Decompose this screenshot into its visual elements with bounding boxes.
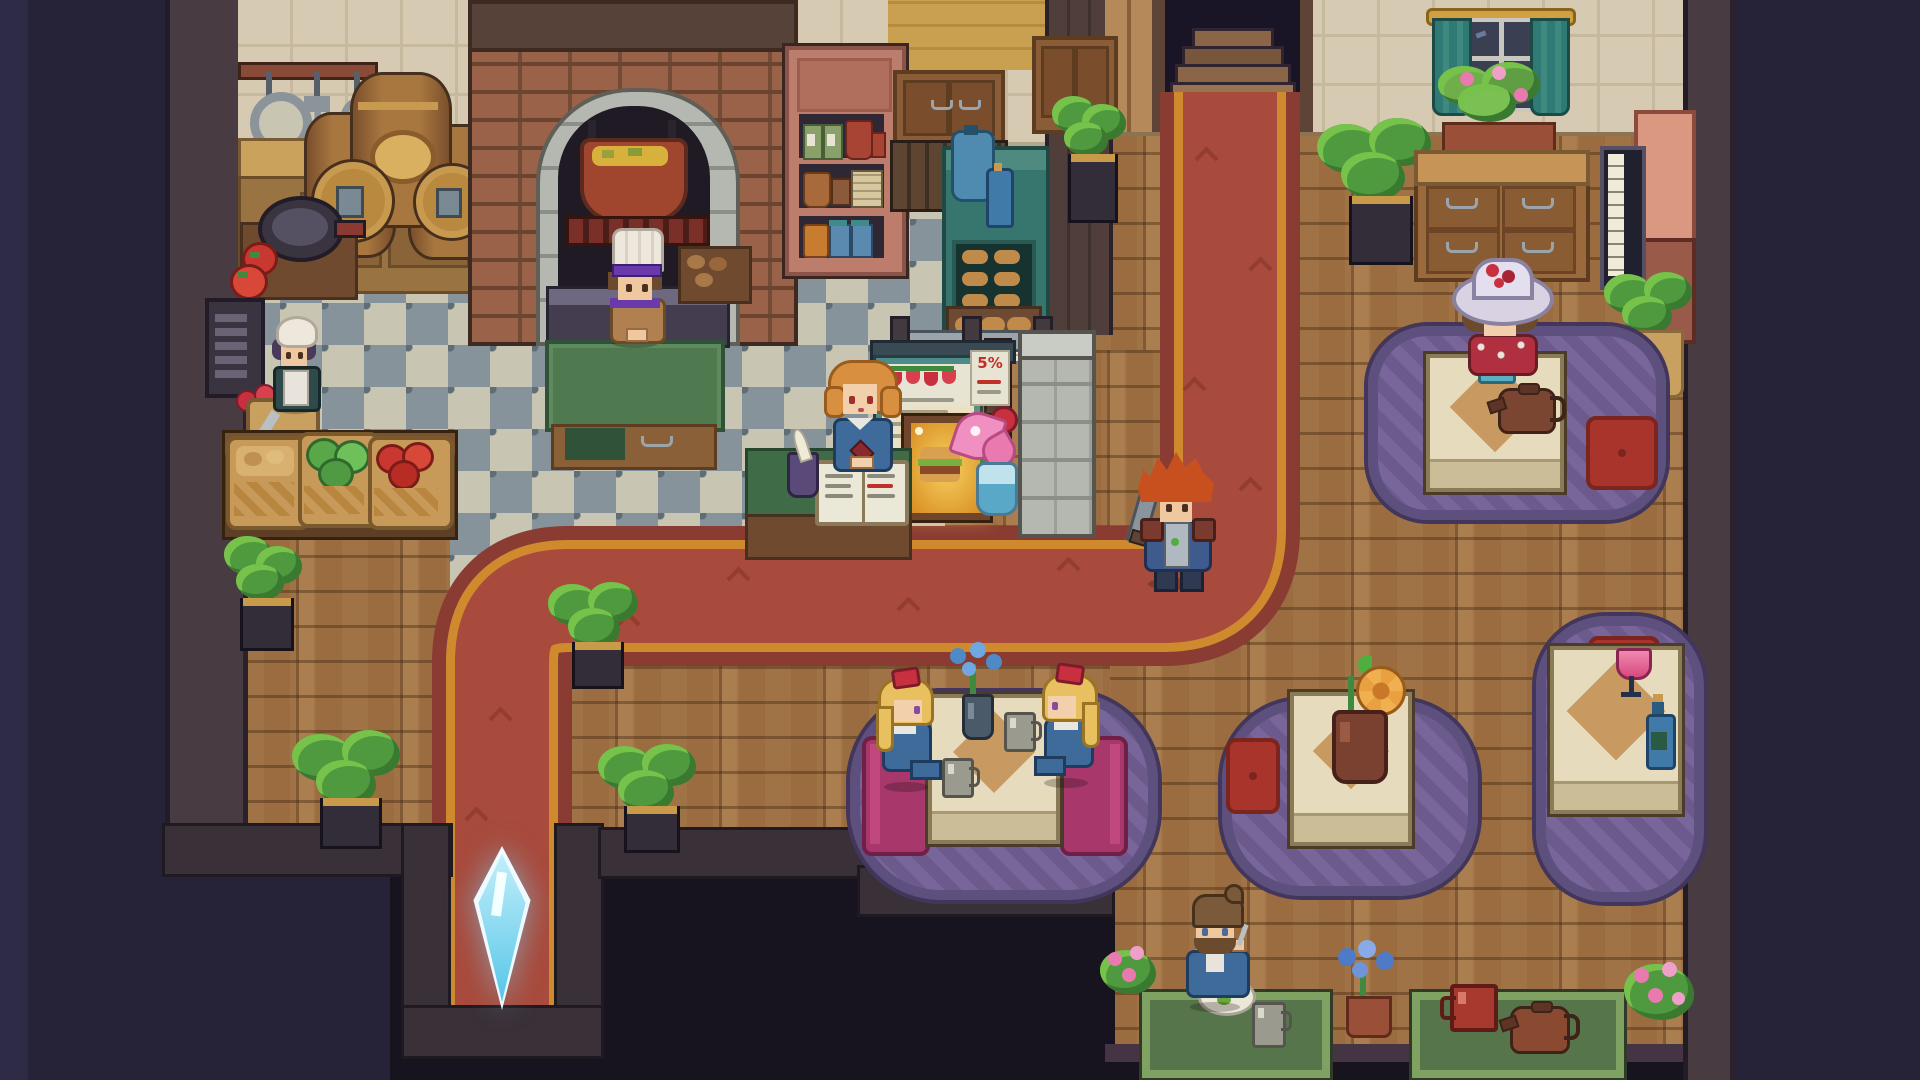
dress (1468, 334, 1538, 376)
pink-flower-bush (1624, 954, 1698, 1030)
pink-flower-icon (1514, 88, 1528, 102)
eye (914, 706, 920, 714)
window-flower-box (1434, 62, 1560, 156)
discount-poster[interactable]: 5% (970, 350, 1010, 406)
corridor-cap (404, 1008, 601, 1056)
orange-jar-icon (803, 224, 829, 258)
barrel-tap-icon (436, 188, 462, 218)
radiator-vent (205, 298, 265, 398)
mouth (858, 408, 864, 412)
vase (962, 694, 994, 740)
legs (1034, 756, 1066, 776)
hair-puff (880, 386, 902, 418)
seat-cushion[interactable] (1226, 738, 1280, 814)
stone-pillar (1018, 330, 1096, 538)
vase (1332, 710, 1388, 784)
eye (1052, 702, 1058, 710)
seat-cushion[interactable] (1586, 416, 1658, 490)
blue-flower-vase (944, 642, 1006, 738)
pauldron (1192, 518, 1216, 542)
prep-table (545, 340, 725, 468)
beard (1194, 938, 1236, 954)
potted-plant (598, 744, 702, 852)
potted-plant (1052, 96, 1128, 278)
green-jar-icon (823, 124, 843, 160)
firewood-crate (678, 246, 752, 304)
blue-flower-icon (962, 662, 976, 676)
npc-twin-left[interactable] (876, 672, 934, 794)
orange-flower-vase (1318, 654, 1402, 784)
teapot-icon (1510, 1006, 1570, 1054)
pink-flower-icon (1662, 962, 1677, 977)
orange-flower-icon (1356, 666, 1406, 716)
drawer-handle-icon (641, 436, 673, 447)
lily-vase (954, 404, 1020, 512)
poster-text: 5% (972, 354, 1008, 372)
glass-vase (976, 462, 1018, 516)
strawberry-icon (906, 370, 920, 384)
tomato-basket[interactable] (368, 436, 454, 530)
hair-strand (876, 706, 894, 752)
npc-hat-lady[interactable] (1452, 258, 1548, 376)
pink-flower-icon (1672, 992, 1685, 1005)
blue-flower-icon (1358, 940, 1376, 958)
bonnet-icon (276, 316, 318, 348)
blue-flower-icon (986, 654, 1002, 670)
teapot-icon (1498, 388, 1556, 434)
soup-pot-icon (580, 138, 688, 222)
npc-knight[interactable] (1138, 452, 1214, 592)
drawer-handle-icon (1522, 242, 1554, 253)
apron (283, 370, 309, 406)
blue-jar-icon (829, 224, 851, 258)
amber-jug-icon (803, 172, 831, 208)
plate-stack-icon (851, 170, 883, 208)
blue-jar-icon (851, 224, 873, 258)
blue-bottle-icon (986, 168, 1014, 228)
blue-flower-pot (1330, 938, 1400, 1038)
pink-flower-icon (1460, 72, 1474, 86)
legs (910, 760, 942, 780)
hair-strand (1082, 702, 1100, 748)
hat-flower-icon (1502, 270, 1515, 283)
hutch-shelf (799, 114, 884, 158)
hutch-shelf (799, 164, 884, 208)
bow-icon (891, 666, 922, 690)
hat-flower-icon (1494, 278, 1504, 288)
potted-plant (292, 730, 406, 850)
pink-flower-icon (1648, 988, 1663, 1003)
drawer-handle-icon (1522, 198, 1554, 209)
pan-handle (334, 220, 366, 238)
corridor-wall-left (404, 826, 448, 1022)
gray-mug-icon (942, 758, 974, 798)
red-mug-icon (1450, 984, 1498, 1032)
blue-flower-icon (1352, 962, 1368, 978)
barrel-tap-icon (336, 186, 364, 218)
hutch-shelf (799, 216, 884, 258)
pink-flower-icon (1122, 968, 1136, 982)
npc-diner-man[interactable] (1180, 894, 1250, 1012)
hat-flower-icon (1486, 264, 1499, 277)
strawberry-icon (942, 370, 956, 384)
hands (850, 456, 874, 469)
cabinet-handle-icon (931, 100, 953, 110)
gem (1171, 538, 1179, 546)
npc-oven-chef[interactable] (602, 228, 668, 348)
corridor-wall-right (557, 826, 601, 1022)
red-cup-icon (871, 132, 886, 158)
blue-flower-icon (950, 648, 966, 664)
potted-plant (548, 582, 642, 690)
npc-hostess[interactable] (828, 360, 892, 472)
blue-flower-icon (1338, 948, 1356, 966)
drawer-handle-icon (1446, 242, 1478, 253)
npc-twin-right[interactable] (1036, 668, 1094, 790)
piano-keys-icon (1600, 146, 1646, 290)
hair-tuft (1224, 884, 1244, 904)
pink-flower-icon (1634, 968, 1649, 983)
save-crystal[interactable] (468, 846, 536, 1010)
pink-flower-icon (1108, 952, 1122, 966)
pink-flower-icon (1492, 66, 1506, 80)
gray-mug-icon (1004, 712, 1036, 752)
wine-bottle-icon (1644, 694, 1672, 766)
pink-flower-icon (1130, 946, 1144, 960)
jar-hutch[interactable] (785, 46, 906, 276)
spiky-hair (1138, 452, 1214, 502)
hands (626, 328, 648, 342)
green-jar-icon (803, 124, 823, 160)
blue-flower-icon (970, 642, 986, 658)
strawberry-icon (924, 372, 938, 386)
blue-flower-icon (1376, 952, 1394, 970)
hat-band (612, 264, 662, 277)
game-viewport: 5% (0, 0, 1920, 1080)
gray-mug-icon (1252, 1002, 1286, 1048)
shirt (1206, 952, 1224, 972)
pink-flower-bush (1100, 942, 1160, 1000)
cabinet-handle-icon (959, 100, 981, 110)
bow-icon (1055, 662, 1086, 686)
red-jug-icon (845, 120, 873, 160)
npc-kitchen-maid[interactable] (270, 318, 320, 414)
brown-mug-icon (831, 178, 851, 206)
potted-plant (222, 536, 306, 652)
drawer-handle-icon (1446, 198, 1478, 209)
